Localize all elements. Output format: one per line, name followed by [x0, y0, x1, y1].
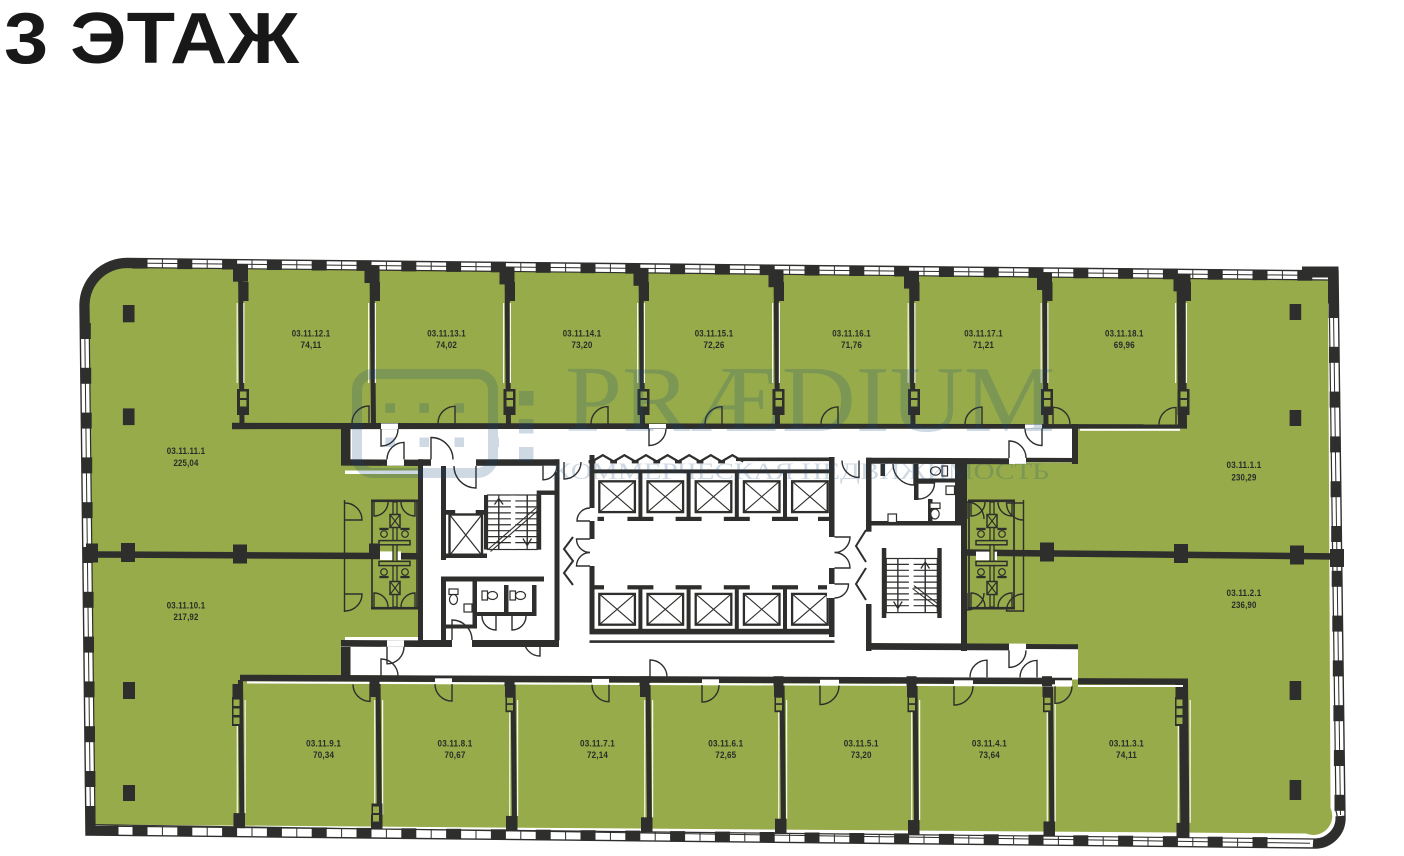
svg-text:225,04: 225,04 [174, 458, 200, 468]
svg-text:71,76: 71,76 [841, 340, 862, 350]
svg-text:КОММЕРЧЕСКАЯ НЕДВИЖИМОСТЬ: КОММЕРЧЕСКАЯ НЕДВИЖИМОСТЬ [552, 459, 1049, 484]
svg-text:03.11.14.1: 03.11.14.1 [563, 328, 602, 338]
svg-text:03.11.9.1: 03.11.9.1 [306, 739, 341, 749]
svg-text:73,64: 73,64 [979, 750, 1001, 760]
svg-text:74,11: 74,11 [1116, 750, 1137, 760]
svg-text:03.11.17.1: 03.11.17.1 [964, 328, 1003, 338]
svg-text:03.11.7.1: 03.11.7.1 [580, 739, 615, 749]
svg-text:74,11: 74,11 [301, 340, 322, 350]
svg-text:03.11.18.1: 03.11.18.1 [1105, 328, 1144, 338]
svg-text:69,96: 69,96 [1114, 340, 1135, 350]
svg-text:03.11.5.1: 03.11.5.1 [844, 739, 879, 749]
svg-text:03.11.15.1: 03.11.15.1 [695, 328, 734, 338]
svg-text:72,65: 72,65 [715, 750, 736, 760]
svg-text:72,14: 72,14 [587, 750, 609, 760]
svg-text:03.11.6.1: 03.11.6.1 [708, 739, 743, 749]
svg-text:70,34: 70,34 [313, 750, 335, 760]
svg-text:3 ЭТАЖ: 3 ЭТАЖ [4, 0, 300, 79]
svg-text:217,92: 217,92 [174, 612, 199, 622]
svg-text:03.11.4.1: 03.11.4.1 [972, 739, 1007, 749]
svg-text:230,29: 230,29 [1232, 472, 1257, 482]
svg-text:70,67: 70,67 [445, 750, 466, 760]
svg-text:74,02: 74,02 [436, 340, 457, 350]
svg-text:03.11.12.1: 03.11.12.1 [292, 328, 331, 338]
svg-text:03.11.8.1: 03.11.8.1 [438, 739, 473, 749]
svg-text:03.11.10.1: 03.11.10.1 [167, 601, 206, 611]
svg-text:03.11.1.1: 03.11.1.1 [1227, 460, 1262, 470]
svg-text:PRÆDIUM: PRÆDIUM [565, 348, 1055, 452]
svg-text:73,20: 73,20 [851, 750, 872, 760]
svg-text:71,21: 71,21 [973, 340, 994, 350]
svg-text:73,20: 73,20 [572, 340, 593, 350]
svg-text:03.11.13.1: 03.11.13.1 [427, 328, 466, 338]
svg-text:236,90: 236,90 [1232, 600, 1257, 610]
svg-text:03.11.11.1: 03.11.11.1 [167, 446, 206, 456]
svg-text:03.11.16.1: 03.11.16.1 [832, 328, 871, 338]
svg-text:03.11.2.1: 03.11.2.1 [1227, 588, 1262, 598]
svg-text:03.11.3.1: 03.11.3.1 [1109, 739, 1144, 749]
svg-text:72,26: 72,26 [704, 340, 725, 350]
